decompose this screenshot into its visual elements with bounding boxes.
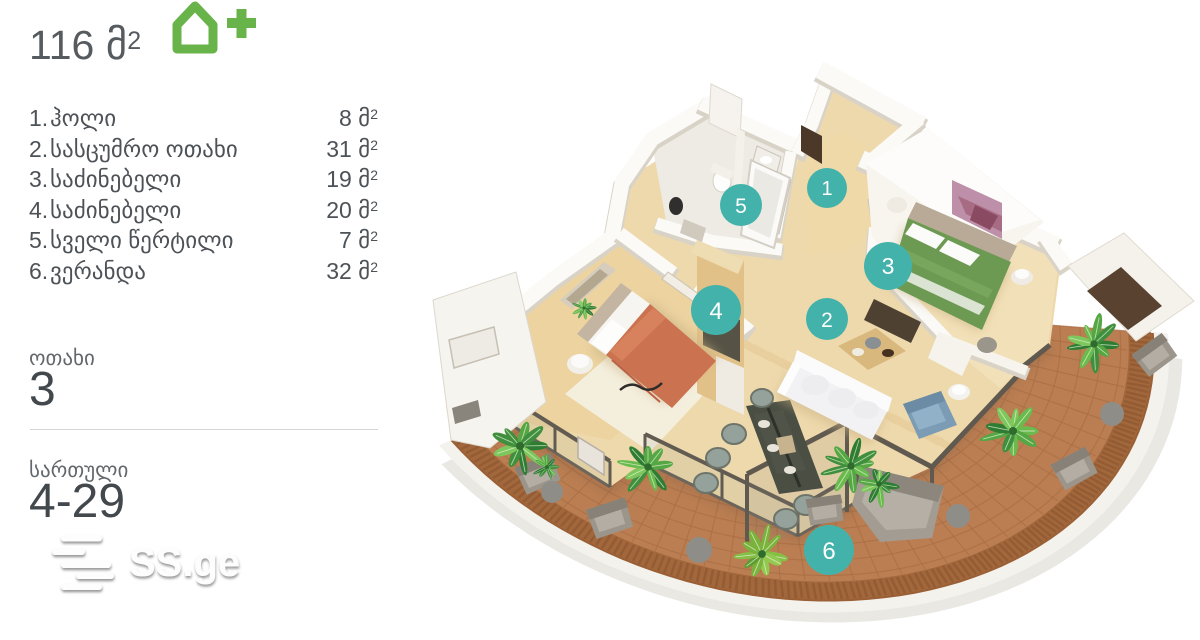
svg-text:6: 6 bbox=[822, 538, 835, 565]
svg-text:5: 5 bbox=[735, 195, 747, 218]
svg-text:1: 1 bbox=[821, 178, 832, 200]
svg-text:3: 3 bbox=[882, 253, 895, 279]
svg-text:2: 2 bbox=[821, 309, 833, 332]
svg-text:4: 4 bbox=[709, 298, 722, 325]
